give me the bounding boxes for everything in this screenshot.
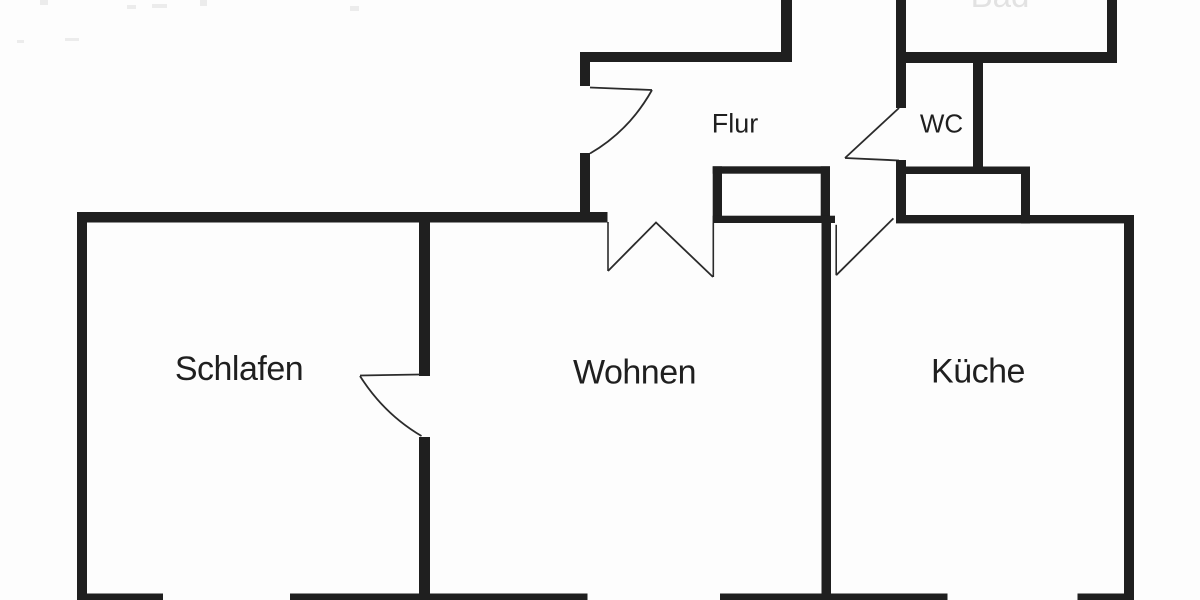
svg-text:Wohnen: Wohnen bbox=[573, 354, 696, 392]
svg-text:WC: WC bbox=[920, 109, 963, 139]
svg-text:Flur: Flur bbox=[712, 109, 759, 139]
svg-text:Küche: Küche bbox=[931, 353, 1025, 391]
svg-text:Schlafen: Schlafen bbox=[175, 350, 303, 388]
svg-text:Bad: Bad bbox=[971, 0, 1030, 14]
